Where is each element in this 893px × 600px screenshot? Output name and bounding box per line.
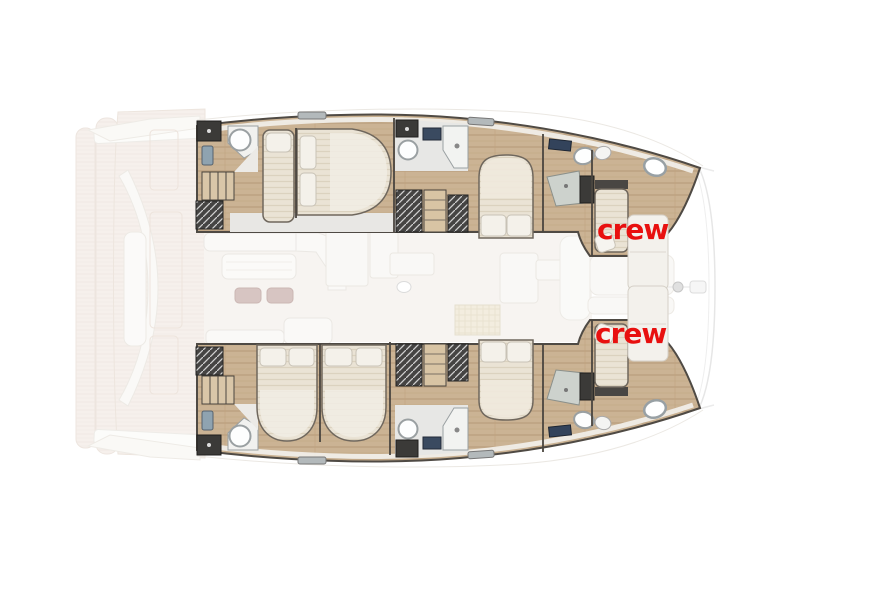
port-aft-cabin (263, 128, 391, 222)
port-locker-hatched (196, 201, 223, 229)
windlass-icon (673, 282, 683, 292)
starboard-mid-cabin (320, 344, 386, 442)
cockpit-table (124, 232, 146, 346)
headboard (595, 180, 628, 189)
deck-window (468, 450, 494, 459)
port-corridor (230, 213, 397, 232)
saloon-chaise (284, 318, 332, 344)
pillow (300, 173, 316, 206)
saloon-table (222, 254, 296, 279)
sink-icon (230, 426, 251, 447)
duvet (481, 380, 531, 417)
toilet-icon (202, 146, 213, 165)
cabinet-knob (207, 129, 211, 133)
toilet-icon (202, 411, 213, 430)
headboard (595, 387, 628, 396)
deck-window (298, 457, 326, 464)
floor-plan-drawing (0, 0, 893, 600)
pillow (300, 136, 316, 169)
galley-unit (326, 228, 368, 286)
galley-sink-icon (397, 282, 411, 293)
sink-icon (399, 141, 418, 160)
shelf-unit (424, 344, 446, 386)
swim-platform-outer (76, 128, 95, 448)
pillow (266, 133, 291, 152)
port-companionway-stairs (202, 172, 234, 200)
starboard-locker-hatched (196, 347, 223, 375)
wardrobe-hatched (396, 344, 422, 386)
port-wardrobes (396, 190, 468, 232)
deck-window (468, 117, 494, 126)
pillow (507, 342, 531, 362)
navy-basin (423, 128, 441, 140)
galley-island (500, 253, 538, 303)
duvet (481, 158, 531, 198)
wardrobe-hatched (448, 195, 468, 232)
pillow (260, 348, 286, 366)
deck-window (298, 112, 326, 119)
wardrobe-hatched (448, 344, 468, 381)
pillow (481, 342, 506, 362)
pillow (325, 348, 352, 366)
shelf-unit (424, 190, 446, 232)
wardrobe-hatched (396, 190, 422, 232)
pillow (481, 215, 506, 236)
sink-icon (230, 130, 251, 151)
window-slit (549, 139, 572, 151)
starboard-mid-bathroom (395, 405, 468, 457)
window-slit (549, 425, 572, 437)
starboard-companionway-stairs (202, 376, 234, 404)
saloon-sofa-back (204, 233, 304, 251)
catamaran-floor-plan: crew crew (0, 0, 893, 600)
pillow (289, 348, 314, 366)
saloon-sofa-lower (206, 330, 284, 345)
pouf (267, 288, 293, 303)
pillow (507, 215, 531, 236)
navy-basin (423, 437, 441, 449)
crew-label-starboard: crew (595, 320, 666, 348)
galley-counter (390, 253, 434, 275)
dark-vanity (396, 440, 418, 457)
faucet-icon (564, 184, 568, 188)
pillow (356, 348, 382, 366)
galley-mat (455, 305, 500, 335)
starboard-aft-cabin (257, 345, 317, 441)
sink-icon (399, 420, 418, 439)
drain-icon (455, 144, 460, 149)
cabinet-knob (207, 443, 211, 447)
anchor-roller (690, 281, 706, 293)
drain-icon (455, 428, 460, 433)
pouf (235, 288, 261, 303)
faucet-icon (564, 388, 568, 392)
crew-label-port: crew (597, 216, 668, 244)
vanity-knob (405, 127, 409, 131)
